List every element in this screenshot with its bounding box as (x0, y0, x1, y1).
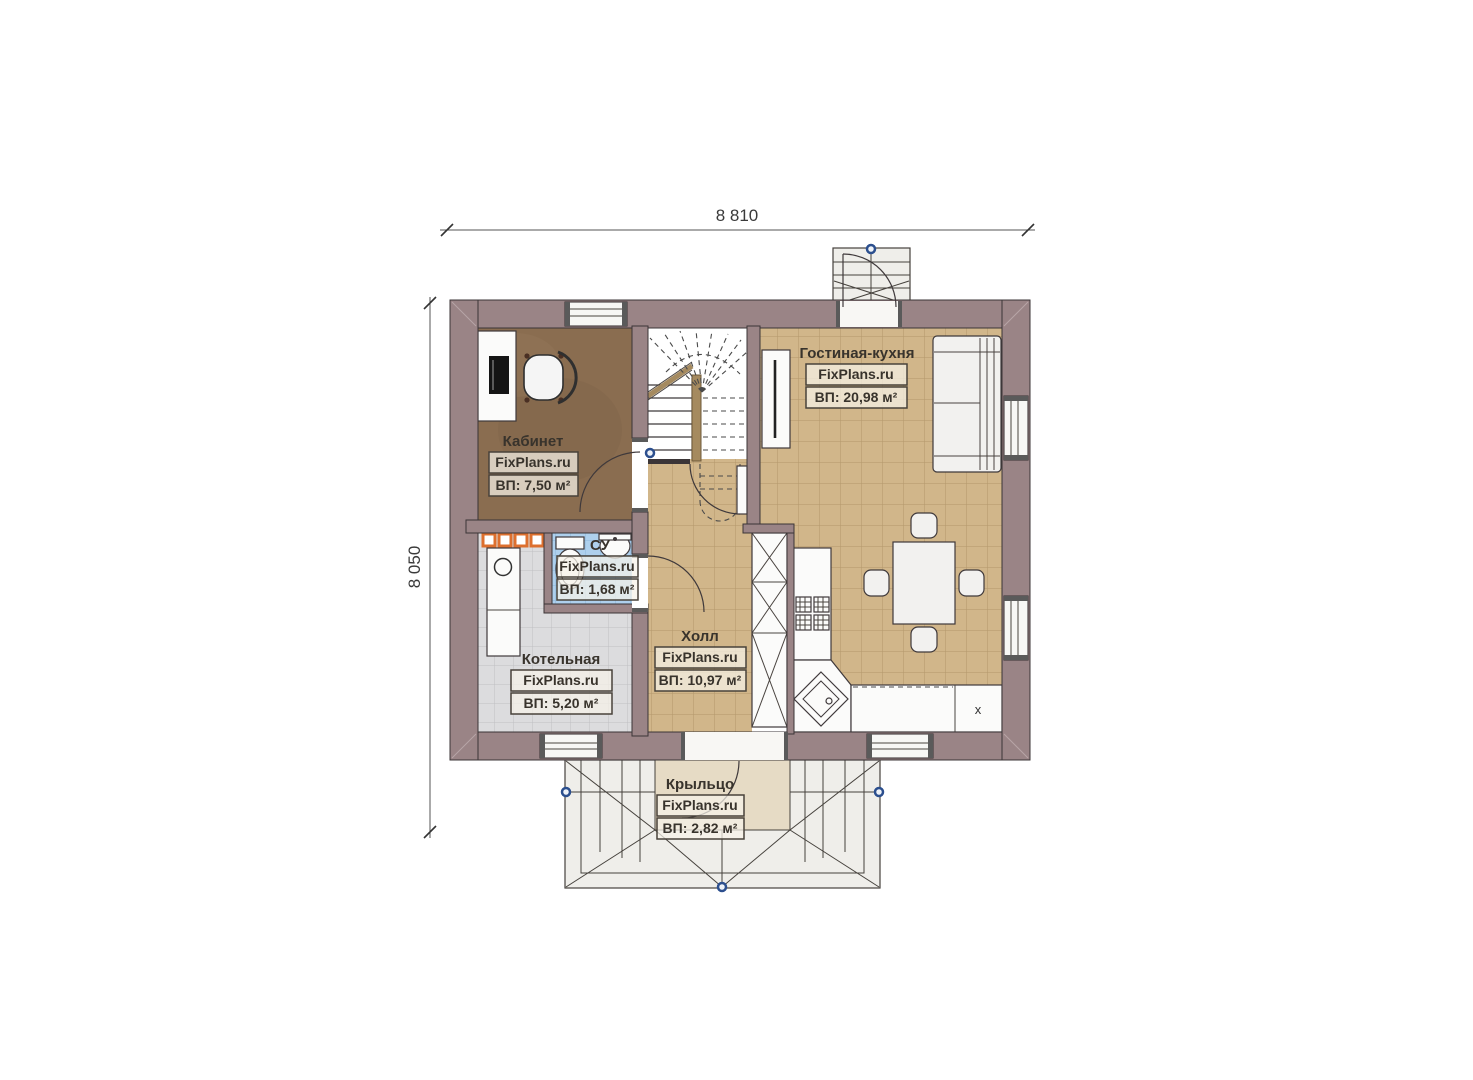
rear-entry-steps (833, 248, 910, 307)
room-area: ВП: 7,50 м² (496, 477, 571, 493)
room-area: ВП: 2,82 м² (663, 820, 738, 836)
room-area: ВП: 20,98 м² (815, 389, 898, 405)
room-label-porch: Крыльцо FixPlans.ru ВП: 2,82 м² (657, 776, 744, 839)
dimension-width-label: 8 810 (716, 206, 759, 225)
room-area: ВП: 10,97 м² (659, 672, 742, 688)
window-top (565, 302, 627, 326)
room-name: СУ (590, 537, 611, 554)
watermark: FixPlans.ru (495, 454, 570, 470)
dimension-left: 8 050 (405, 297, 436, 838)
stair-threshold (645, 459, 690, 464)
sofa (933, 336, 1001, 472)
dimension-height-label: 8 050 (405, 546, 424, 589)
room-label-living-kitchen: Гостиная-кухня FixPlans.ru ВП: 20,98 м² (800, 345, 915, 408)
room-area: ВП: 5,20 м² (524, 695, 599, 711)
watermark: FixPlans.ru (662, 797, 737, 813)
floor-plan-drawing: 8 810 8 050 (0, 0, 1473, 1080)
room-name: Гостиная-кухня (800, 345, 915, 362)
boiler-unit (487, 548, 520, 656)
window-right-upper (1004, 396, 1028, 460)
appliance-x-label: x (975, 702, 982, 717)
watermark: FixPlans.ru (818, 366, 893, 382)
room-name: Кабинет (503, 433, 564, 450)
room-area: ВП: 1,68 м² (560, 581, 635, 597)
watermark: FixPlans.ru (559, 558, 634, 574)
door-opening-front (681, 732, 788, 760)
room-name: Крыльцо (666, 776, 734, 793)
window-bottom-left (540, 734, 602, 758)
tv-unit (762, 350, 790, 448)
window-right-lower (1004, 596, 1028, 660)
monitor-icon (489, 356, 509, 394)
hall-floor (638, 459, 752, 740)
door-opening-rear (836, 301, 902, 327)
door-opening-office (632, 438, 648, 512)
watermark: FixPlans.ru (523, 672, 598, 688)
window-bottom-right (867, 734, 933, 758)
watermark: FixPlans.ru (662, 649, 737, 665)
room-name: Холл (681, 628, 719, 645)
floor-plan-page: 8 810 8 050 (0, 0, 1473, 1080)
wardrobe (752, 533, 787, 727)
room-label-boiler: Котельная FixPlans.ru ВП: 5,20 м² (511, 651, 612, 714)
room-name: Котельная (522, 651, 601, 668)
office-desk (478, 331, 516, 421)
dimension-top: 8 810 (440, 206, 1035, 236)
